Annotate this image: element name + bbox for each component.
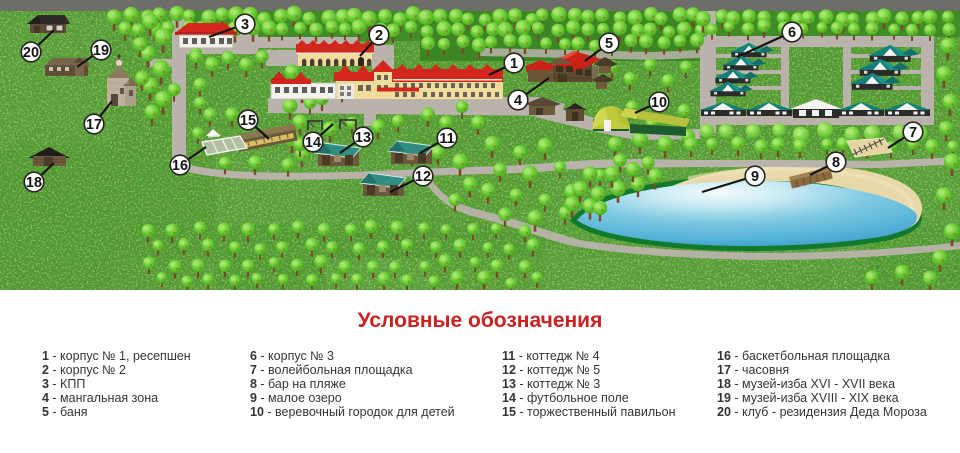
- svg-text:2: 2: [375, 28, 383, 44]
- svg-text:14: 14: [305, 135, 321, 151]
- svg-text:20: 20: [23, 45, 39, 61]
- svg-text:4: 4: [514, 93, 522, 109]
- svg-text:9: 9: [751, 169, 759, 185]
- svg-text:18: 18: [26, 175, 42, 191]
- svg-text:15: 15: [240, 113, 256, 129]
- svg-text:5: 5: [605, 36, 613, 52]
- svg-text:13: 13: [355, 130, 371, 146]
- svg-text:8: 8: [832, 155, 840, 171]
- svg-text:7: 7: [909, 125, 917, 141]
- svg-text:17: 17: [86, 117, 102, 133]
- svg-text:10: 10: [651, 95, 667, 111]
- svg-text:19: 19: [93, 43, 109, 59]
- svg-text:3: 3: [241, 17, 249, 33]
- svg-text:16: 16: [172, 158, 188, 174]
- svg-text:1: 1: [510, 56, 518, 72]
- svg-text:12: 12: [415, 169, 431, 185]
- svg-text:6: 6: [788, 25, 796, 41]
- svg-text:11: 11: [439, 131, 454, 147]
